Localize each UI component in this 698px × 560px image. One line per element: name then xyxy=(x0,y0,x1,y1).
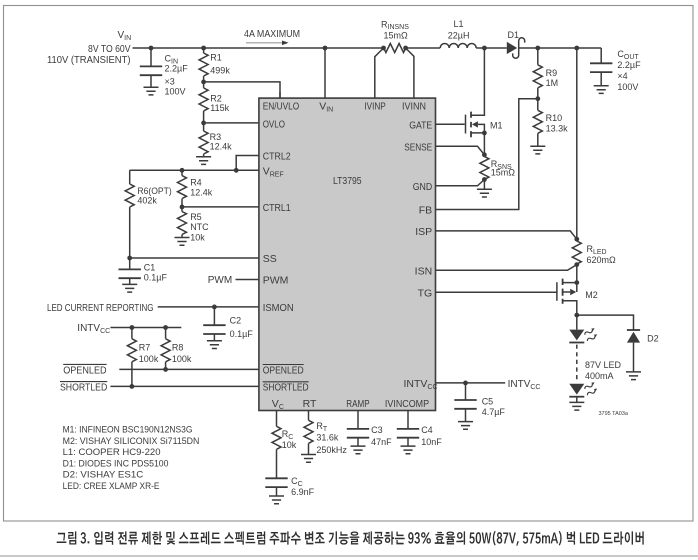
svg-text:10nF: 10nF xyxy=(421,437,442,447)
svg-text:22µH: 22µH xyxy=(448,30,470,40)
svg-text:100V: 100V xyxy=(165,87,186,97)
svg-text:RT: RT xyxy=(303,398,317,410)
svg-text:LT3795: LT3795 xyxy=(333,175,362,187)
svg-text:GND: GND xyxy=(413,181,433,193)
svg-text:2.2µF: 2.2µF xyxy=(617,60,641,70)
svg-text:12.4k: 12.4k xyxy=(190,188,213,198)
svg-text:PWM: PWM xyxy=(208,275,232,286)
svg-text:4A MAXIMUM: 4A MAXIMUM xyxy=(244,29,300,40)
svg-text:ISMON: ISMON xyxy=(263,302,294,314)
svg-text:RAMP: RAMP xyxy=(346,398,369,410)
svg-text:CTRL1: CTRL1 xyxy=(263,202,291,214)
svg-text:499k: 499k xyxy=(210,65,230,75)
svg-text:10k: 10k xyxy=(282,440,297,450)
svg-text:M2: M2 xyxy=(585,290,598,300)
svg-text:47nF: 47nF xyxy=(371,437,392,447)
svg-text:C1: C1 xyxy=(144,262,156,272)
svg-text:M1: M1 xyxy=(490,121,503,131)
svg-text:D2: D2 xyxy=(647,334,659,344)
svg-text:3795 TA03a: 3795 TA03a xyxy=(599,411,629,417)
svg-text:ISP: ISP xyxy=(415,226,432,238)
svg-text:IVINN: IVINN xyxy=(402,100,426,112)
svg-text:110V (TRANSIENT): 110V (TRANSIENT) xyxy=(47,55,131,66)
svg-text:100V: 100V xyxy=(617,82,638,92)
svg-text:M1: INFINEON BSC190N12NS3G: M1: INFINEON BSC190N12NS3G xyxy=(63,425,193,436)
svg-text:4.7µF: 4.7µF xyxy=(482,407,506,417)
svg-text:NTC: NTC xyxy=(190,222,209,232)
svg-text:C4: C4 xyxy=(421,425,433,435)
svg-text:EN/UVLO: EN/UVLO xyxy=(263,100,300,112)
svg-text:SS: SS xyxy=(263,253,277,265)
svg-text:R1: R1 xyxy=(210,53,222,63)
svg-text:10k: 10k xyxy=(190,233,205,243)
svg-text:C3: C3 xyxy=(371,425,383,435)
svg-text:R5: R5 xyxy=(190,212,202,222)
svg-text:15mΩ: 15mΩ xyxy=(491,168,516,178)
svg-text:R4: R4 xyxy=(190,178,202,188)
svg-text:LED CURRENT REPORTING: LED CURRENT REPORTING xyxy=(47,303,154,314)
svg-text:IVINCOMP: IVINCOMP xyxy=(385,398,429,410)
svg-text:TG: TG xyxy=(418,287,433,299)
svg-text:OPENLED: OPENLED xyxy=(263,364,304,376)
svg-text:1M: 1M xyxy=(546,78,559,88)
svg-text:R10: R10 xyxy=(546,113,563,123)
svg-text:C2: C2 xyxy=(230,316,242,326)
svg-text:OPENLED: OPENLED xyxy=(63,365,106,376)
svg-text:402k: 402k xyxy=(137,195,157,205)
svg-text:6.9nF: 6.9nF xyxy=(291,487,315,497)
svg-text:D1: DIODES INC PDS5100: D1: DIODES INC PDS5100 xyxy=(63,458,169,469)
svg-text:250kHz: 250kHz xyxy=(316,445,347,455)
svg-text:OVLO: OVLO xyxy=(263,119,285,131)
svg-text:100k: 100k xyxy=(172,354,192,364)
svg-text:2.2µF: 2.2µF xyxy=(165,64,189,74)
svg-text:R8: R8 xyxy=(172,343,184,353)
svg-text:CTRL2: CTRL2 xyxy=(263,151,291,163)
svg-text:M2: VISHAY SILICONIX Si7115DN: M2: VISHAY SILICONIX Si7115DN xyxy=(63,436,200,447)
svg-text:100k: 100k xyxy=(139,354,159,364)
svg-text:R9: R9 xyxy=(546,68,558,78)
svg-text:15mΩ: 15mΩ xyxy=(384,30,409,40)
svg-text:D2: VISHAY ES1C: D2: VISHAY ES1C xyxy=(63,470,144,481)
svg-text:0.1µF: 0.1µF xyxy=(230,329,254,339)
svg-text:ISN: ISN xyxy=(415,265,433,277)
svg-text:87V LED: 87V LED xyxy=(585,360,622,370)
svg-text:FB: FB xyxy=(419,205,432,217)
svg-text:GATE: GATE xyxy=(409,119,432,131)
svg-text:13.3k: 13.3k xyxy=(546,124,569,134)
svg-text:SENSE: SENSE xyxy=(404,141,432,153)
svg-text:400mA: 400mA xyxy=(585,371,614,381)
svg-text:0.1µF: 0.1µF xyxy=(144,273,168,283)
svg-text:×3: ×3 xyxy=(165,77,175,87)
svg-text:620mΩ: 620mΩ xyxy=(587,255,617,265)
svg-text:IVINP: IVINP xyxy=(364,100,386,112)
svg-text:12.4k: 12.4k xyxy=(210,141,233,151)
svg-text:C5: C5 xyxy=(482,397,494,407)
svg-text:PWM: PWM xyxy=(263,275,289,287)
svg-text:L1: COOPER HC9-220: L1: COOPER HC9-220 xyxy=(63,447,161,458)
svg-text:R7: R7 xyxy=(139,343,151,353)
svg-text:R2: R2 xyxy=(210,93,222,103)
svg-text:SHORTLED: SHORTLED xyxy=(60,383,107,394)
svg-text:D1: D1 xyxy=(508,30,520,40)
svg-text:115k: 115k xyxy=(210,103,229,113)
svg-text:31.6k: 31.6k xyxy=(316,433,339,443)
svg-text:8V TO 60V: 8V TO 60V xyxy=(88,44,131,55)
svg-text:×4: ×4 xyxy=(617,71,627,81)
svg-text:L1: L1 xyxy=(454,19,464,29)
svg-text:LED: CREE XLAMP XR-E: LED: CREE XLAMP XR-E xyxy=(63,481,160,492)
svg-text:SHORTLED: SHORTLED xyxy=(263,382,309,394)
